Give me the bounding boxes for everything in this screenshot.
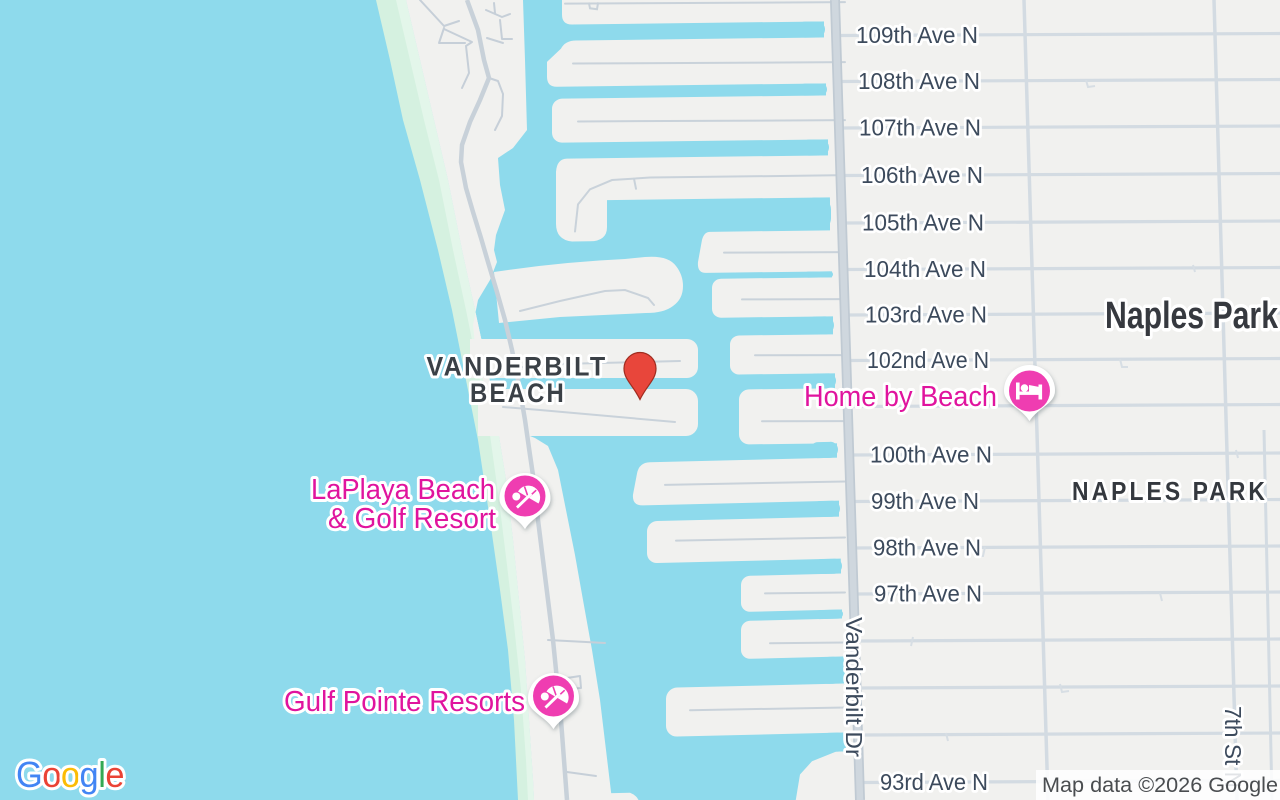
svg-text:Home by Beach: Home by Beach xyxy=(804,381,997,413)
svg-text:99th Ave N: 99th Ave N xyxy=(871,488,979,514)
svg-text:BEACH: BEACH xyxy=(470,378,566,408)
svg-text:Map data ©2026 Google: Map data ©2026 Google xyxy=(1042,774,1278,797)
svg-text:97th Ave N: 97th Ave N xyxy=(874,581,982,607)
svg-text:93rd Ave N: 93rd Ave N xyxy=(880,769,988,795)
svg-text:102nd Ave N: 102nd Ave N xyxy=(867,347,989,373)
svg-text:106th Ave N: 106th Ave N xyxy=(861,162,983,188)
svg-text:LaPlaya Beach: LaPlaya Beach xyxy=(311,474,495,506)
svg-text:Naples Park: Naples Park xyxy=(1105,295,1279,337)
svg-text:107th Ave N: 107th Ave N xyxy=(859,115,981,141)
svg-text:108th Ave N: 108th Ave N xyxy=(858,68,980,94)
svg-text:Vanderbilt Dr: Vanderbilt Dr xyxy=(841,617,867,757)
svg-text:Gulf Pointe Resorts: Gulf Pointe Resorts xyxy=(284,686,525,718)
svg-text:105th Ave N: 105th Ave N xyxy=(862,210,984,236)
svg-text:104th Ave N: 104th Ave N xyxy=(864,256,986,282)
svg-text:NAPLES PARK: NAPLES PARK xyxy=(1072,476,1268,506)
svg-text:Google: Google xyxy=(16,754,124,795)
svg-text:VANDERBILT: VANDERBILT xyxy=(427,352,608,382)
svg-text:109th Ave N: 109th Ave N xyxy=(856,22,978,48)
svg-text:103rd Ave N: 103rd Ave N xyxy=(865,302,987,328)
svg-text:& Golf Resort: & Golf Resort xyxy=(328,503,496,535)
svg-text:98th Ave N: 98th Ave N xyxy=(873,535,981,561)
svg-text:100th Ave N: 100th Ave N xyxy=(870,442,992,468)
